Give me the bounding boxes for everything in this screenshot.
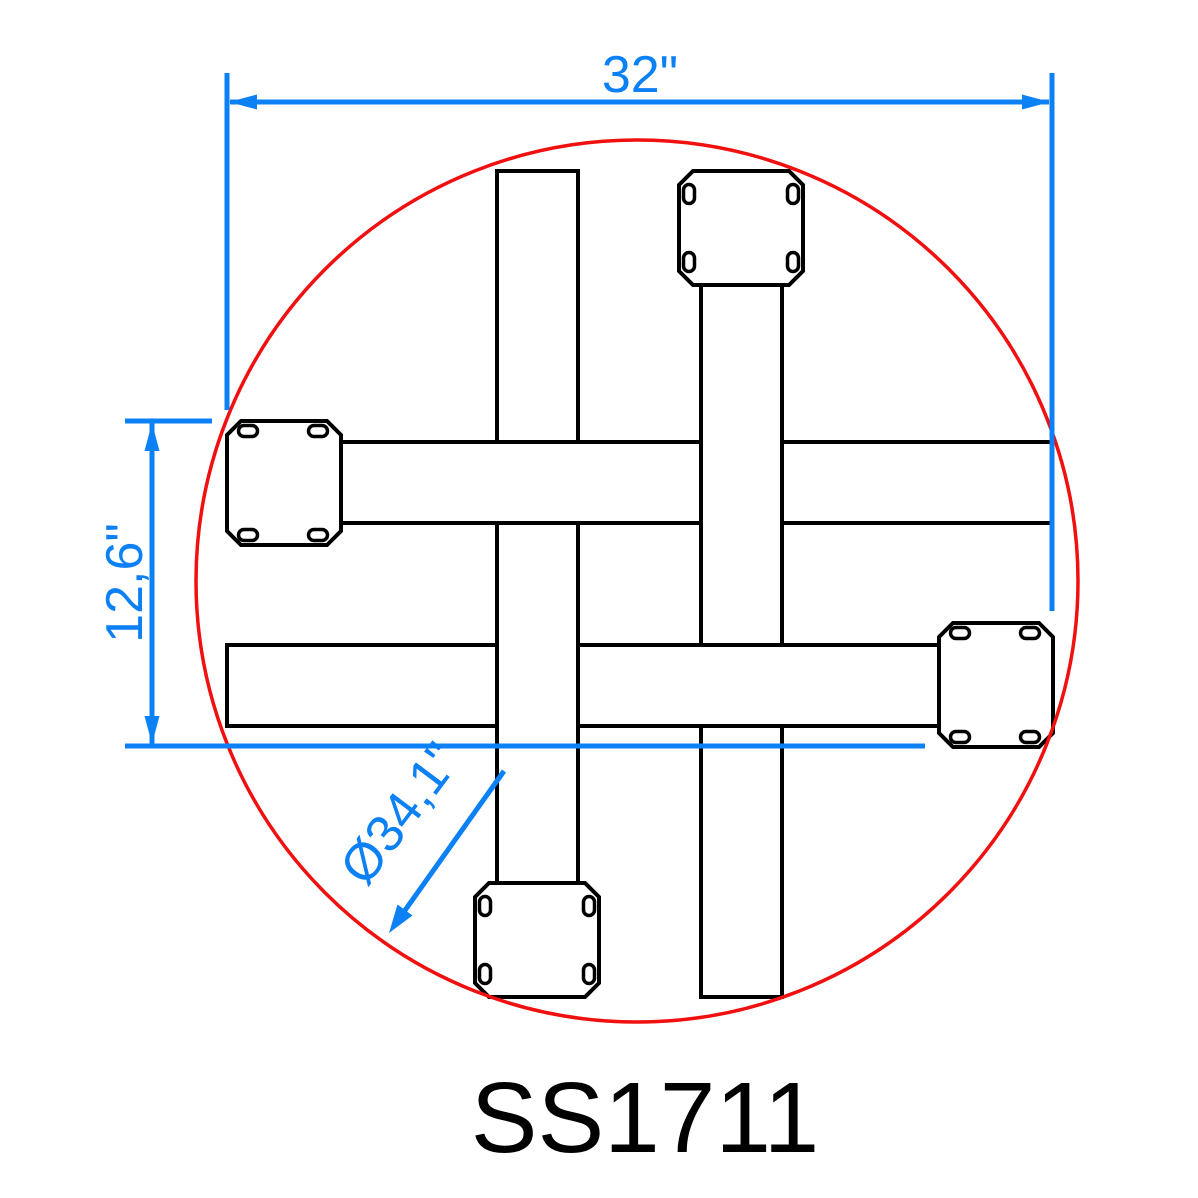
dimension-width-label: 32" <box>602 46 678 104</box>
arrowhead-up-icon <box>145 423 160 451</box>
dimension-width: 32" <box>227 46 1052 611</box>
weave-overlap-patch <box>497 637 578 734</box>
arrowhead-left-icon <box>229 95 257 110</box>
mounting-plate-right <box>939 623 1053 747</box>
bolt-slot <box>951 628 970 639</box>
bolt-slot <box>309 530 328 541</box>
bolt-slot <box>480 965 491 984</box>
bolt-slot <box>951 732 970 743</box>
mounting-plate-top <box>679 171 803 285</box>
bolt-slot <box>584 897 595 916</box>
table-base-technical-drawing: 32" 12,6" Ø34,1" SS1711 <box>0 0 1198 1198</box>
bolt-slot <box>684 185 695 204</box>
bolt-slot <box>1021 732 1040 743</box>
arrowhead-right-icon <box>1022 95 1050 110</box>
bolt-slot <box>239 426 258 437</box>
leg-bar-horizontal-upper <box>341 442 1052 523</box>
leg-bar-vertical-left <box>497 171 578 883</box>
leg-bar-vertical-right <box>701 285 782 997</box>
part-number-title: SS1711 <box>471 1062 819 1174</box>
mounting-plate-bottom <box>475 883 599 997</box>
dimension-diameter-label: Ø34,1" <box>329 732 472 895</box>
arrowhead-down-icon <box>145 716 160 744</box>
bolt-slot <box>788 185 799 204</box>
bolt-slot <box>1021 628 1040 639</box>
bolt-slot <box>684 253 695 272</box>
bolt-slot <box>788 253 799 272</box>
leg-bar-horizontal-lower <box>227 645 939 726</box>
bolt-slot <box>239 530 258 541</box>
mounting-plate-left <box>227 421 341 545</box>
bolt-slot <box>309 426 328 437</box>
bolt-slot <box>584 965 595 984</box>
drawing-sheet: 32" 12,6" Ø34,1" SS1711 <box>0 0 1198 1198</box>
tabletop-circle <box>196 140 1078 1022</box>
bolt-slot <box>480 897 491 916</box>
dimension-height-label: 12,6" <box>96 523 154 643</box>
